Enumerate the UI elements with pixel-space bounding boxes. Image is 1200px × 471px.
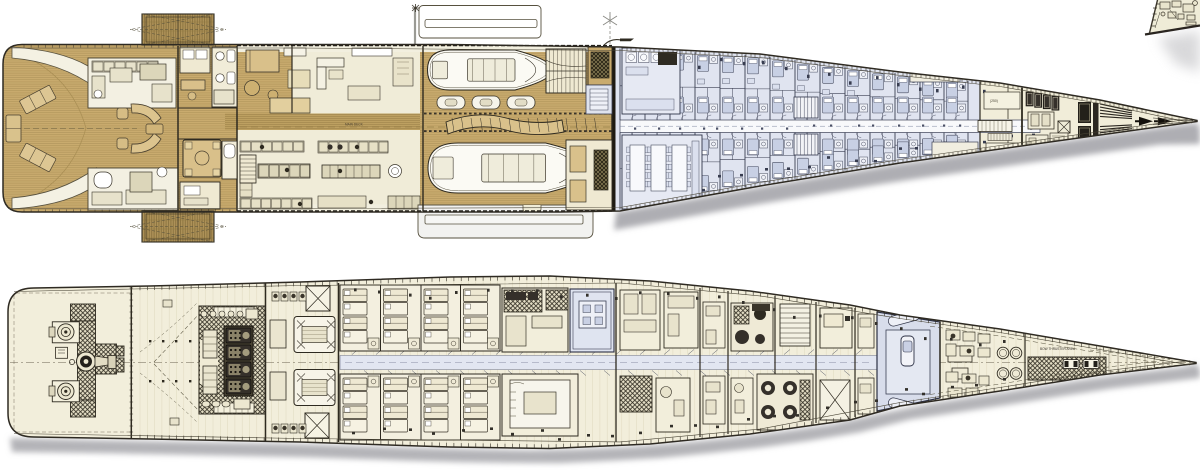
svg-text:BOW THRUSTER AREA: BOW THRUSTER AREA — [1040, 347, 1076, 351]
svg-text:MAIN DECK: MAIN DECK — [345, 123, 364, 127]
svg-text:(250): (250) — [990, 99, 998, 103]
